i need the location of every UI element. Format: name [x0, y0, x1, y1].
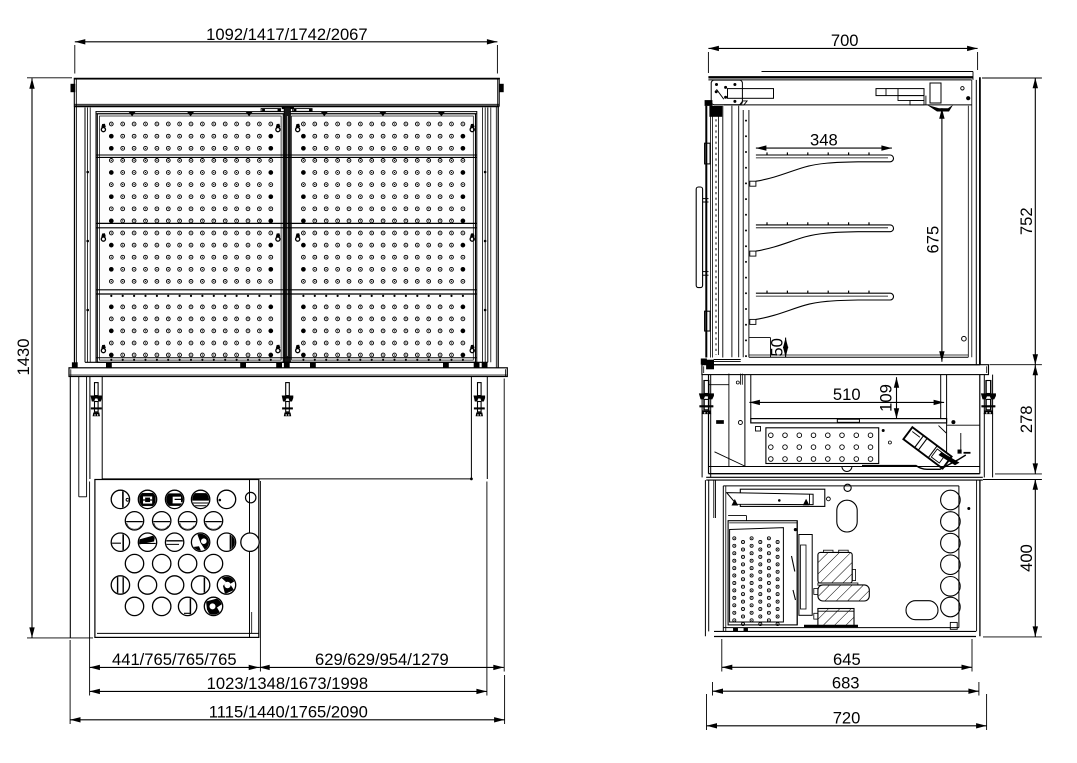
svg-text:1115/1440/1765/2090: 1115/1440/1765/2090 — [209, 702, 368, 721]
svg-text:510: 510 — [833, 385, 861, 404]
svg-text:720: 720 — [833, 708, 861, 727]
svg-text:675: 675 — [924, 226, 943, 254]
svg-text:109: 109 — [876, 384, 895, 412]
svg-text:1023/1348/1673/1998: 1023/1348/1673/1998 — [207, 674, 369, 693]
svg-text:683: 683 — [832, 674, 860, 693]
svg-text:752: 752 — [1017, 207, 1036, 235]
svg-text:629/629/954/1279: 629/629/954/1279 — [315, 650, 449, 669]
svg-text:50: 50 — [767, 338, 786, 356]
svg-text:700: 700 — [831, 31, 859, 50]
svg-text:1092/1417/1742/2067: 1092/1417/1742/2067 — [206, 25, 368, 44]
svg-text:441/765/765/765: 441/765/765/765 — [112, 650, 237, 669]
svg-text:645: 645 — [833, 650, 861, 669]
svg-text:400: 400 — [1017, 544, 1036, 572]
svg-text:348: 348 — [810, 131, 838, 150]
svg-text:278: 278 — [1017, 405, 1036, 433]
svg-text:1430: 1430 — [14, 339, 33, 376]
